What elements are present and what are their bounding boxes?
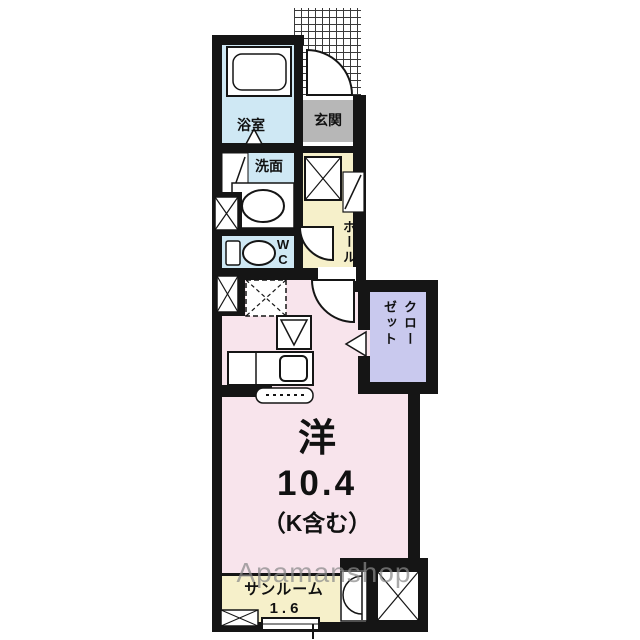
- washroom-label: 洗面: [246, 158, 292, 174]
- watermark: Apamanshop: [236, 557, 412, 589]
- room-note: （K含む）: [246, 510, 388, 536]
- wall-top: [212, 35, 304, 45]
- bathroom-label: 浴室: [227, 117, 275, 133]
- wall-entrance-hall: [294, 146, 366, 153]
- room-label: 洋: [294, 418, 340, 462]
- wall-bath-washroom: [212, 143, 303, 153]
- sunroom-size: 1.6: [258, 600, 314, 617]
- wc-label: WC: [275, 237, 291, 267]
- wall-right-bottom: [418, 558, 428, 632]
- floorplan: 浴室 玄関 洗面 WC ホール クローゼット 洋 10.4 （K含む） サンルー…: [0, 0, 640, 640]
- wall-right-lower: [408, 394, 420, 566]
- entry-porch-hatch: [294, 8, 361, 95]
- wall-closet-left-b: [358, 356, 370, 382]
- wall-bath-entrance: [294, 35, 303, 153]
- hall-label: ホール: [340, 214, 356, 270]
- wall-closet-right: [426, 292, 438, 394]
- wall-closet-top: [358, 280, 438, 292]
- wall-bottom: [212, 622, 428, 632]
- wall-closet-left-a: [358, 292, 370, 330]
- wall-washroom-hall: [294, 153, 303, 280]
- closet-label: クローゼット: [379, 295, 419, 353]
- room-size: 10.4: [258, 464, 376, 504]
- wall-closet-bottom: [358, 382, 438, 394]
- wall-washroom-wc: [212, 228, 303, 236]
- entrance-label: 玄関: [303, 112, 353, 128]
- wall-left: [212, 35, 222, 632]
